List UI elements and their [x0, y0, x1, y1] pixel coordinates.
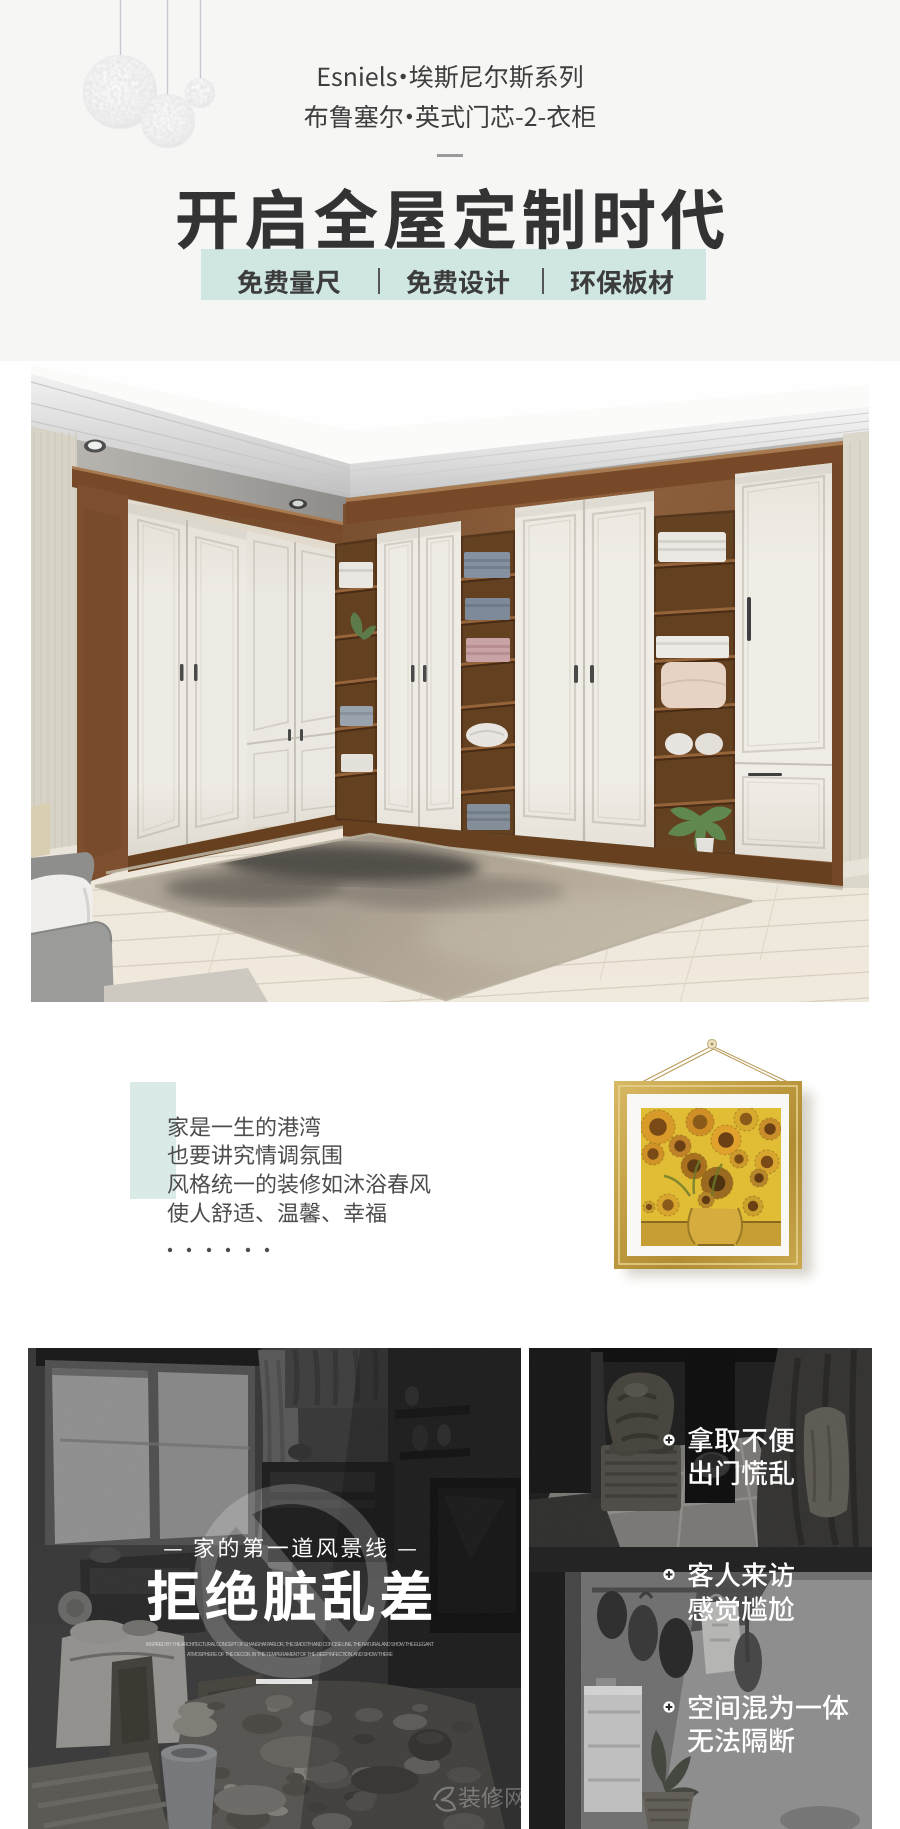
svg-text:ATMOSPHERE OF THE DECOR, IN TH: ATMOSPHERE OF THE DECOR, IN THE TEMPERAM… — [187, 1652, 394, 1658]
svg-text:INSPIRED BY THE ARCHITECTURAL: INSPIRED BY THE ARCHITECTURAL CONCEPT OF… — [146, 1642, 434, 1648]
